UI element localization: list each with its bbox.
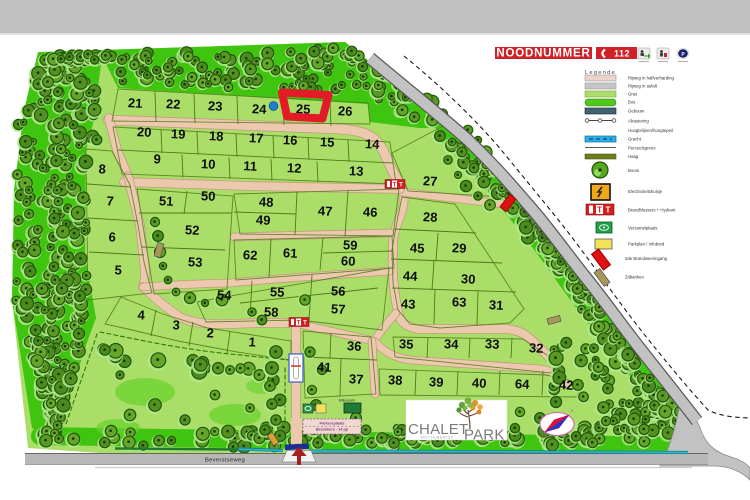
svg-text:48: 48 — [259, 194, 274, 210]
svg-text:Bos: Bos — [628, 100, 635, 105]
svg-text:49: 49 — [256, 212, 271, 228]
svg-text:Milieupark: Milieupark — [339, 399, 356, 403]
svg-text:Brandblussers + Hydrant: Brandblussers + Hydrant — [628, 208, 676, 213]
svg-text:41: 41 — [317, 359, 332, 375]
svg-text:45: 45 — [410, 240, 425, 256]
svg-text:10: 10 — [201, 156, 216, 172]
svg-text:40: 40 — [472, 375, 487, 391]
svg-text:58: 58 — [264, 304, 279, 320]
svg-text:2de Brandweeringang: 2de Brandweeringang — [625, 256, 668, 261]
svg-text:63: 63 — [452, 294, 467, 310]
svg-text:N: N — [540, 434, 543, 439]
svg-text:2: 2 — [206, 325, 214, 340]
svg-text:33: 33 — [485, 336, 500, 352]
svg-text:15: 15 — [320, 134, 335, 150]
svg-text:30: 30 — [461, 271, 476, 287]
svg-text:62: 62 — [243, 247, 258, 263]
svg-text:42: 42 — [559, 377, 574, 393]
svg-text:14: 14 — [365, 136, 381, 152]
svg-text:17: 17 — [249, 130, 264, 146]
svg-text:52: 52 — [185, 222, 200, 238]
svg-text:Gras: Gras — [628, 92, 637, 97]
svg-text:NOODNUMMER: NOODNUMMER — [496, 48, 590, 60]
svg-text:54: 54 — [217, 287, 233, 303]
svg-text:Perceelsgrens: Perceelsgrens — [628, 146, 655, 151]
svg-text:16: 16 — [283, 132, 298, 148]
svg-text:8: 8 — [98, 161, 106, 176]
svg-text:T: T — [297, 321, 301, 327]
svg-text:6: 6 — [108, 229, 116, 244]
svg-text:60: 60 — [341, 253, 356, 269]
svg-text:Beverstseweg: Beverstseweg — [205, 458, 245, 464]
svg-text:47: 47 — [318, 203, 333, 219]
svg-text:Zitbanken: Zitbanken — [625, 275, 644, 280]
svg-text:Rijweg in asfalt: Rijweg in asfalt — [628, 84, 658, 89]
svg-text:Verzamelplaats: Verzamelplaats — [628, 226, 657, 231]
svg-text:7: 7 — [106, 193, 114, 208]
svg-text:PARK: PARK — [464, 427, 505, 444]
svg-text:24: 24 — [252, 101, 268, 117]
svg-text:55: 55 — [270, 284, 285, 300]
svg-text:Haag: Haag — [628, 154, 639, 159]
svg-text:35: 35 — [399, 336, 414, 352]
svg-text:T: T — [606, 206, 611, 215]
svg-text:SINT HUBERTUS: SINT HUBERTUS — [420, 436, 453, 440]
svg-text:21: 21 — [128, 95, 143, 111]
svg-text:5: 5 — [114, 262, 122, 277]
svg-text:1: 1 — [248, 334, 256, 349]
svg-text:9: 9 — [153, 151, 161, 166]
svg-text:22: 22 — [166, 96, 181, 112]
svg-text:38: 38 — [388, 372, 403, 388]
svg-text:Z: Z — [571, 408, 574, 413]
svg-text:T: T — [303, 321, 307, 327]
svg-text:26: 26 — [338, 103, 353, 119]
svg-text:36: 36 — [347, 338, 362, 354]
svg-text:34: 34 — [444, 336, 460, 352]
svg-text:Bezoekers - 14 pp: Bezoekers - 14 pp — [316, 428, 349, 432]
svg-text:31: 31 — [489, 297, 504, 313]
svg-text:61: 61 — [283, 245, 298, 261]
svg-text:28: 28 — [423, 209, 438, 225]
svg-text:53: 53 — [188, 254, 203, 270]
svg-text:44: 44 — [403, 268, 419, 284]
svg-text:23: 23 — [208, 98, 223, 114]
svg-text:Boom: Boom — [628, 168, 640, 173]
svg-text:Gebouw: Gebouw — [628, 109, 645, 114]
svg-text:32: 32 — [529, 340, 544, 356]
svg-text:Parkplan / Infobord: Parkplan / Infobord — [628, 242, 665, 247]
svg-text:46: 46 — [363, 204, 378, 220]
svg-text:Parkeerplaats: Parkeerplaats — [320, 422, 345, 426]
svg-text:T: T — [399, 183, 403, 189]
svg-text:29: 29 — [452, 240, 467, 256]
svg-text:57: 57 — [331, 301, 346, 317]
svg-text:12: 12 — [287, 160, 302, 176]
svg-text:50: 50 — [201, 188, 216, 204]
svg-text:56: 56 — [331, 283, 346, 299]
svg-text:112: 112 — [614, 48, 630, 58]
svg-text:Rijweg in halfverharding: Rijweg in halfverharding — [628, 76, 674, 81]
svg-text:13: 13 — [349, 163, 364, 179]
svg-text:11: 11 — [243, 158, 258, 174]
svg-text:3: 3 — [172, 317, 180, 332]
svg-text:18: 18 — [209, 128, 224, 144]
svg-text:64: 64 — [515, 376, 531, 392]
svg-text:Afrastering: Afrastering — [628, 119, 649, 124]
svg-text:T: T — [393, 183, 397, 189]
svg-text:Hoogtelijnen/hoogtepeil: Hoogtelijnen/hoogtepeil — [628, 128, 673, 133]
svg-text:51: 51 — [159, 193, 174, 209]
svg-text:37: 37 — [349, 371, 364, 387]
svg-text:59: 59 — [343, 237, 358, 253]
svg-text:19: 19 — [171, 126, 186, 142]
svg-text:39: 39 — [429, 374, 444, 390]
svg-text:20: 20 — [137, 124, 152, 140]
svg-text:Electriciteitshuisje: Electriciteitshuisje — [628, 189, 663, 194]
svg-text:Gracht: Gracht — [628, 137, 642, 142]
svg-text:27: 27 — [423, 173, 438, 189]
svg-text:T: T — [597, 206, 602, 215]
svg-text:43: 43 — [401, 296, 416, 312]
